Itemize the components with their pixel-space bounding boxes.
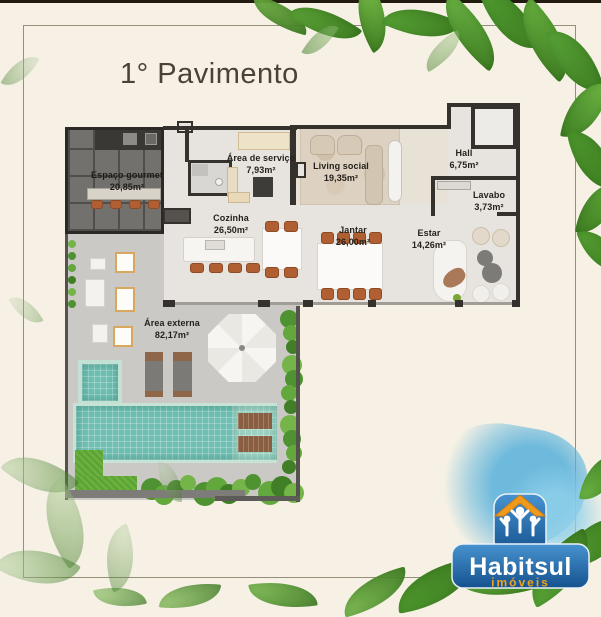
room-name: Área de serviço: [227, 153, 296, 163]
wall-segment: [433, 176, 520, 180]
wall-segment: [368, 300, 376, 307]
sun-lounger: [173, 352, 192, 397]
chair: [209, 263, 223, 273]
grass-patch: [75, 450, 103, 478]
chair: [190, 263, 204, 273]
room-area: 3,73m²: [474, 202, 503, 212]
spa-pool: [78, 360, 122, 405]
armchair: [337, 135, 362, 155]
wall-segment: [431, 176, 435, 216]
chair: [369, 288, 382, 300]
shrub: [281, 385, 297, 401]
outdoor-lounger: [115, 287, 135, 312]
room-area: 14,26m²: [412, 240, 446, 250]
dining-table: [317, 243, 383, 290]
leaf-decoration: [159, 579, 221, 612]
kitchen-table: [262, 228, 302, 270]
room-label-estar: Estar 14,26m²: [412, 228, 446, 251]
wall-segment: [455, 300, 463, 307]
outdoor-table: [85, 279, 105, 307]
pool-lounger: [238, 436, 272, 452]
chair: [321, 288, 334, 300]
room-name: Living social: [313, 161, 369, 171]
room-name: Cozinha: [213, 213, 249, 223]
cooktop-island-icon: [205, 240, 225, 250]
room-label-hall: Hall 6,75m²: [449, 148, 478, 171]
wall-segment: [163, 126, 297, 130]
chair: [337, 288, 350, 300]
room-name: Área externa: [144, 318, 200, 328]
tv-unit: [296, 162, 306, 178]
side-table: [482, 263, 502, 283]
chair: [110, 200, 122, 209]
chair: [369, 232, 382, 244]
cooktop-icon: [145, 133, 157, 145]
wall-segment: [303, 300, 313, 307]
room-name: Estar: [417, 228, 440, 238]
wall-segment: [163, 302, 520, 305]
room-area: 26,50m²: [214, 225, 248, 235]
chair: [148, 200, 160, 209]
room-name: Jantar: [339, 225, 367, 235]
shrub: [68, 276, 76, 284]
leaf-decoration: [248, 576, 318, 615]
shrub: [68, 264, 76, 272]
room-label-area-externa: Área externa 82,17m²: [144, 318, 200, 341]
room-label-cozinha: Cozinha 26,50m²: [213, 213, 249, 236]
room-area: 6,75m²: [449, 160, 478, 170]
wall-segment: [258, 300, 270, 307]
room-label-area-servico: Área de serviço 7,93m²: [227, 153, 296, 176]
chair: [265, 267, 279, 278]
logo-tagline-text: imóveis: [491, 576, 550, 590]
room-label-lavabo: Lavabo 3,73m²: [473, 190, 505, 213]
lavabo-sink: [437, 181, 471, 190]
room-area: 82,17m²: [155, 330, 189, 340]
wall-segment: [293, 125, 449, 129]
chair: [353, 288, 366, 300]
chair: [246, 263, 260, 273]
service-counter: [238, 132, 290, 150]
pouf: [472, 227, 490, 245]
seat-cushion: [472, 285, 490, 303]
room-area: 7,93m²: [246, 165, 275, 175]
umbrella-pole: [239, 345, 245, 351]
wall-segment: [65, 234, 68, 500]
outdoor-table: [90, 258, 106, 270]
shrub: [68, 252, 76, 260]
leaf-decoration: [576, 222, 601, 280]
chair: [284, 267, 298, 278]
floor-plan-page: { "title": "1° Pavimento", "rooms": [ {"…: [0, 0, 601, 600]
elevator-shaft: [471, 105, 517, 149]
shrub: [68, 300, 76, 308]
wall-segment: [516, 105, 520, 307]
chair: [265, 221, 279, 232]
room-name: Hall: [456, 148, 473, 158]
wall-segment: [296, 306, 300, 502]
shrub: [68, 288, 76, 296]
leaf-decoration: [575, 178, 601, 238]
chair: [321, 232, 334, 244]
room-label-jantar: Jantar 26,00m²: [336, 225, 370, 248]
room-area: 20,85m²: [110, 182, 144, 192]
shrub: [282, 460, 296, 474]
wall-segment: [185, 128, 189, 162]
chair: [284, 221, 298, 232]
room-label-living-social: Living social 19,35m²: [313, 161, 369, 184]
sun-lounger: [145, 352, 163, 397]
fireplace-unit: [388, 140, 402, 202]
wall-segment: [163, 300, 175, 307]
outdoor-lounger: [113, 326, 133, 347]
pouf: [492, 229, 510, 247]
shower-head-icon: [215, 178, 223, 186]
page-title: 1° Pavimento: [120, 58, 299, 91]
laundry-counter: [228, 192, 250, 203]
room-area: 26,00m²: [336, 237, 370, 247]
wall-segment: [215, 496, 300, 501]
outdoor-lounger: [115, 252, 135, 273]
shrub: [68, 240, 76, 248]
wall-segment: [447, 103, 520, 107]
room-name: Lavabo: [473, 190, 505, 200]
outdoor-table: [92, 324, 108, 343]
chair: [91, 200, 103, 209]
room-label-espaco-gourmet: Espaço gourmet 20,85m²: [91, 170, 163, 193]
chair: [228, 263, 242, 273]
seat-cushion: [492, 283, 510, 301]
shower-glass: [192, 164, 208, 176]
habitsul-logo: Habitsul imóveis: [448, 488, 593, 593]
oven-icon: [123, 133, 137, 145]
washer-icon: [253, 177, 273, 197]
wall-segment: [512, 300, 520, 307]
armchair: [310, 135, 335, 155]
chair: [129, 200, 141, 209]
room-name: Espaço gourmet: [91, 170, 163, 180]
pool-lounger: [238, 413, 272, 429]
grill-box: [163, 208, 191, 224]
room-area: 19,35m²: [324, 173, 358, 183]
